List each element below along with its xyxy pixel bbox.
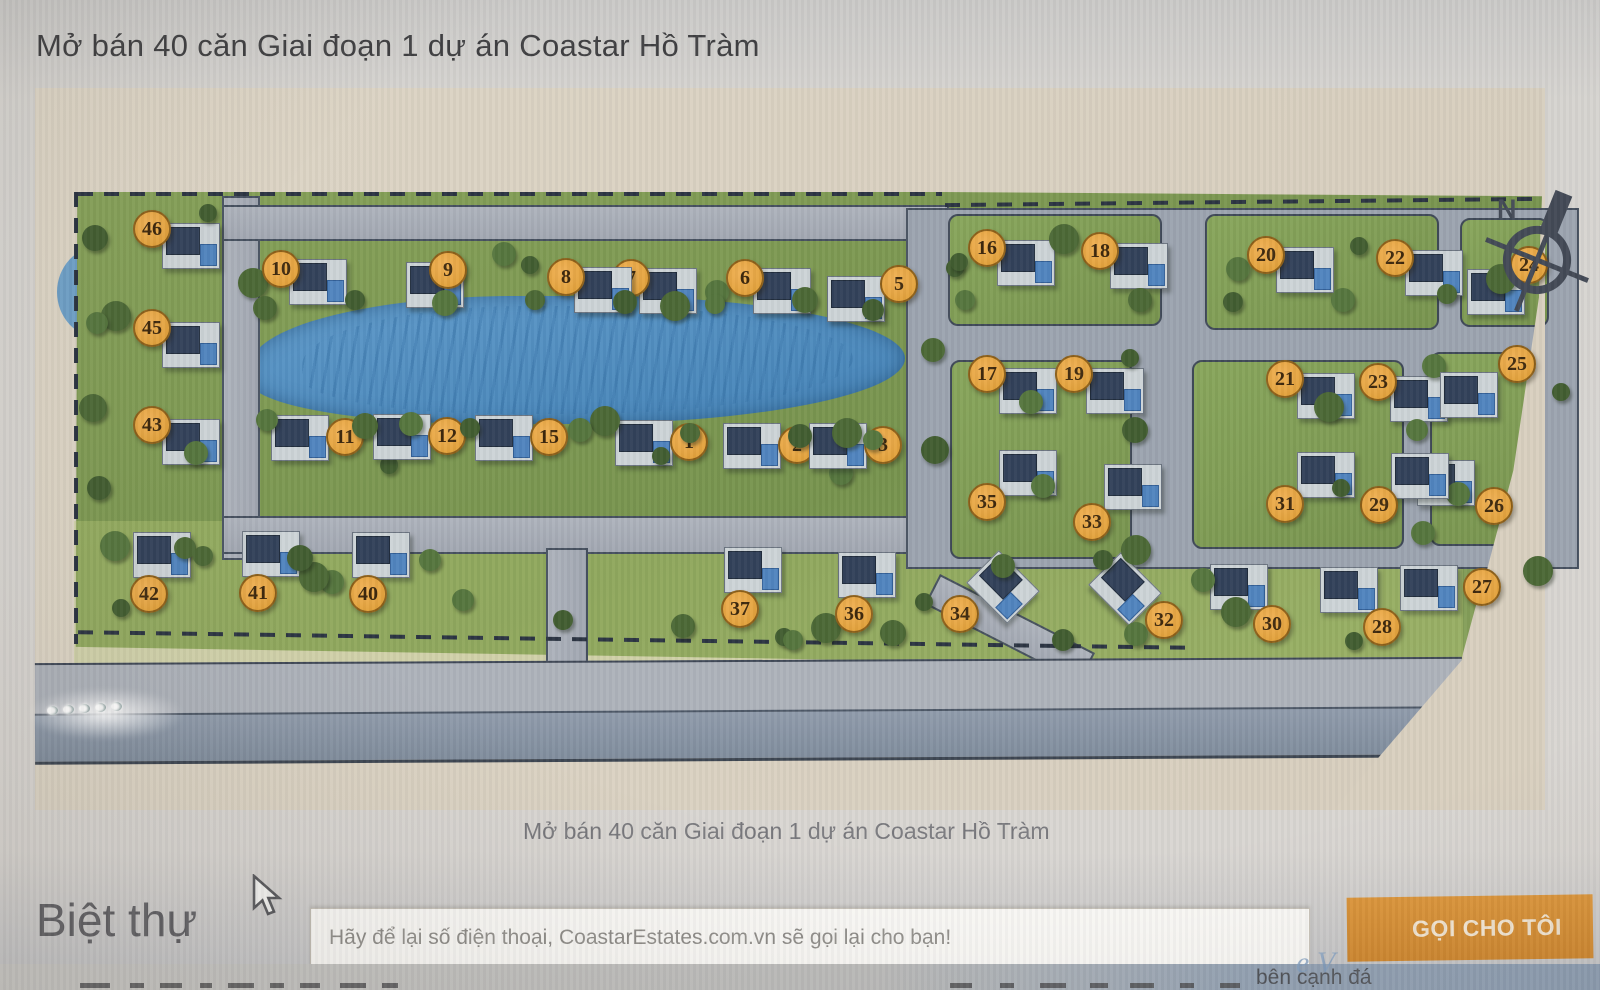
tree [399, 412, 423, 436]
lot-marker-41: 41 [239, 574, 277, 612]
lot-marker-8: 8 [547, 258, 585, 296]
house-lot-25 [1440, 372, 1498, 418]
tree [86, 312, 108, 334]
tree [287, 545, 313, 571]
lot-marker-43: 43 [133, 406, 171, 444]
tree [352, 413, 378, 439]
tree [1437, 284, 1457, 304]
lot-marker-29: 29 [1360, 486, 1398, 524]
lot-marker-37: 37 [721, 590, 759, 628]
tree [256, 409, 278, 431]
tree [705, 294, 725, 314]
tree [921, 338, 945, 362]
tree [1031, 474, 1055, 498]
tree [915, 593, 933, 611]
tree [1226, 257, 1250, 281]
section-heading: Biệt thự [36, 893, 197, 947]
tree [783, 630, 803, 650]
lot-marker-21: 21 [1266, 360, 1304, 398]
tree [1552, 383, 1570, 401]
lot-marker-15: 15 [530, 418, 568, 456]
tree [419, 549, 441, 571]
tree [253, 296, 277, 320]
tree [1523, 556, 1553, 586]
tree [1052, 629, 1074, 651]
tree [863, 430, 883, 450]
lot-marker-25: 25 [1498, 345, 1536, 383]
lot-marker-9: 9 [429, 251, 467, 289]
tree [100, 531, 130, 561]
tree [1221, 597, 1251, 627]
tree [921, 436, 949, 464]
house-lot-36 [838, 552, 896, 598]
tree [199, 204, 217, 222]
compass-icon: N [1475, 186, 1595, 316]
lot-marker-32: 32 [1145, 601, 1183, 639]
tree [1121, 349, 1139, 367]
lot-marker-10: 10 [262, 250, 300, 288]
tree [680, 423, 700, 443]
lot-marker-28: 28 [1363, 608, 1401, 646]
tree [660, 291, 690, 321]
tree [950, 253, 968, 271]
tree [1223, 292, 1243, 312]
tree [1122, 417, 1148, 443]
tree [880, 620, 906, 646]
tree [184, 441, 208, 465]
house-lot-37 [724, 547, 782, 593]
tree [792, 287, 818, 313]
tree [955, 290, 975, 310]
tree [788, 424, 812, 448]
tree [1019, 390, 1043, 414]
house-lot-19 [1086, 368, 1144, 414]
cropped-text-fragment: bên cạnh đá [1256, 966, 1372, 990]
lot-marker-27: 27 [1463, 568, 1501, 606]
map-caption: Mở bán 40 căn Giai đoạn 1 dự án Coastar … [523, 818, 1050, 845]
tree [1124, 622, 1148, 646]
house-lot-11 [271, 415, 329, 461]
tree [1345, 632, 1363, 650]
house-lot-33 [1104, 464, 1162, 510]
tree [112, 599, 130, 617]
tree [1121, 535, 1151, 565]
lot-marker-46: 46 [133, 210, 171, 248]
house-lot-40 [352, 532, 410, 578]
lot-marker-26: 26 [1475, 487, 1513, 525]
tree [1049, 224, 1079, 254]
tree [832, 418, 862, 448]
house-lot-29 [1391, 453, 1449, 499]
lot-marker-42: 42 [130, 575, 168, 613]
phone-input[interactable] [310, 908, 1310, 967]
tree [613, 290, 637, 314]
lot-marker-20: 20 [1247, 236, 1285, 274]
tree [79, 394, 107, 422]
lot-marker-36: 36 [835, 595, 873, 633]
lot-marker-30: 30 [1253, 605, 1291, 643]
lot-marker-18: 18 [1081, 232, 1119, 270]
tree [525, 290, 545, 310]
tree [1446, 482, 1470, 506]
tree [862, 299, 884, 321]
mouse-cursor-icon [252, 874, 286, 918]
lot-marker-40: 40 [349, 575, 387, 613]
lot-marker-17: 17 [968, 355, 1006, 393]
tree [432, 290, 458, 316]
tree [1332, 479, 1350, 497]
tree [1314, 392, 1344, 422]
tree [991, 554, 1015, 578]
tree [1406, 419, 1428, 441]
tree [671, 614, 695, 638]
tree [193, 546, 213, 566]
site-plan-map[interactable]: 1235678910111215161718192021222324252627… [35, 88, 1545, 810]
house-lot-28 [1320, 567, 1378, 613]
svg-text:N: N [1497, 194, 1517, 224]
call-me-button-label: GỌI CHO TÔI [1412, 913, 1562, 942]
house-lot-15 [475, 415, 533, 461]
page-title: Mở bán 40 căn Giai đoạn 1 dự án Coastar … [36, 28, 760, 64]
lot-marker-16: 16 [968, 229, 1006, 267]
tree [1411, 521, 1435, 545]
lot-marker-35: 35 [968, 483, 1006, 521]
lot-marker-34: 34 [941, 595, 979, 633]
tree [1093, 550, 1113, 570]
tree [345, 290, 365, 310]
tree [492, 242, 516, 266]
tree [460, 418, 480, 438]
tree [553, 610, 573, 630]
tree [1128, 288, 1152, 312]
lot-marker-23: 23 [1359, 363, 1397, 401]
lot-marker-6: 6 [726, 259, 764, 297]
lot-marker-45: 45 [133, 309, 171, 347]
lot-marker-22: 22 [1376, 239, 1414, 277]
tree [82, 225, 108, 251]
tree [1331, 288, 1355, 312]
tree [521, 256, 539, 274]
call-me-button[interactable]: GỌI CHO TÔI [1347, 894, 1594, 961]
tree [87, 476, 111, 500]
lot-marker-19: 19 [1055, 355, 1093, 393]
tree [568, 418, 592, 442]
house-lot-27 [1400, 565, 1458, 611]
tree [652, 447, 670, 465]
lot-marker-33: 33 [1073, 503, 1111, 541]
lot-marker-5: 5 [880, 265, 918, 303]
house-lot-2 [723, 423, 781, 469]
tree [1350, 237, 1368, 255]
tree [452, 589, 474, 611]
tree [1191, 568, 1215, 592]
lot-marker-31: 31 [1266, 485, 1304, 523]
tree [590, 406, 620, 436]
